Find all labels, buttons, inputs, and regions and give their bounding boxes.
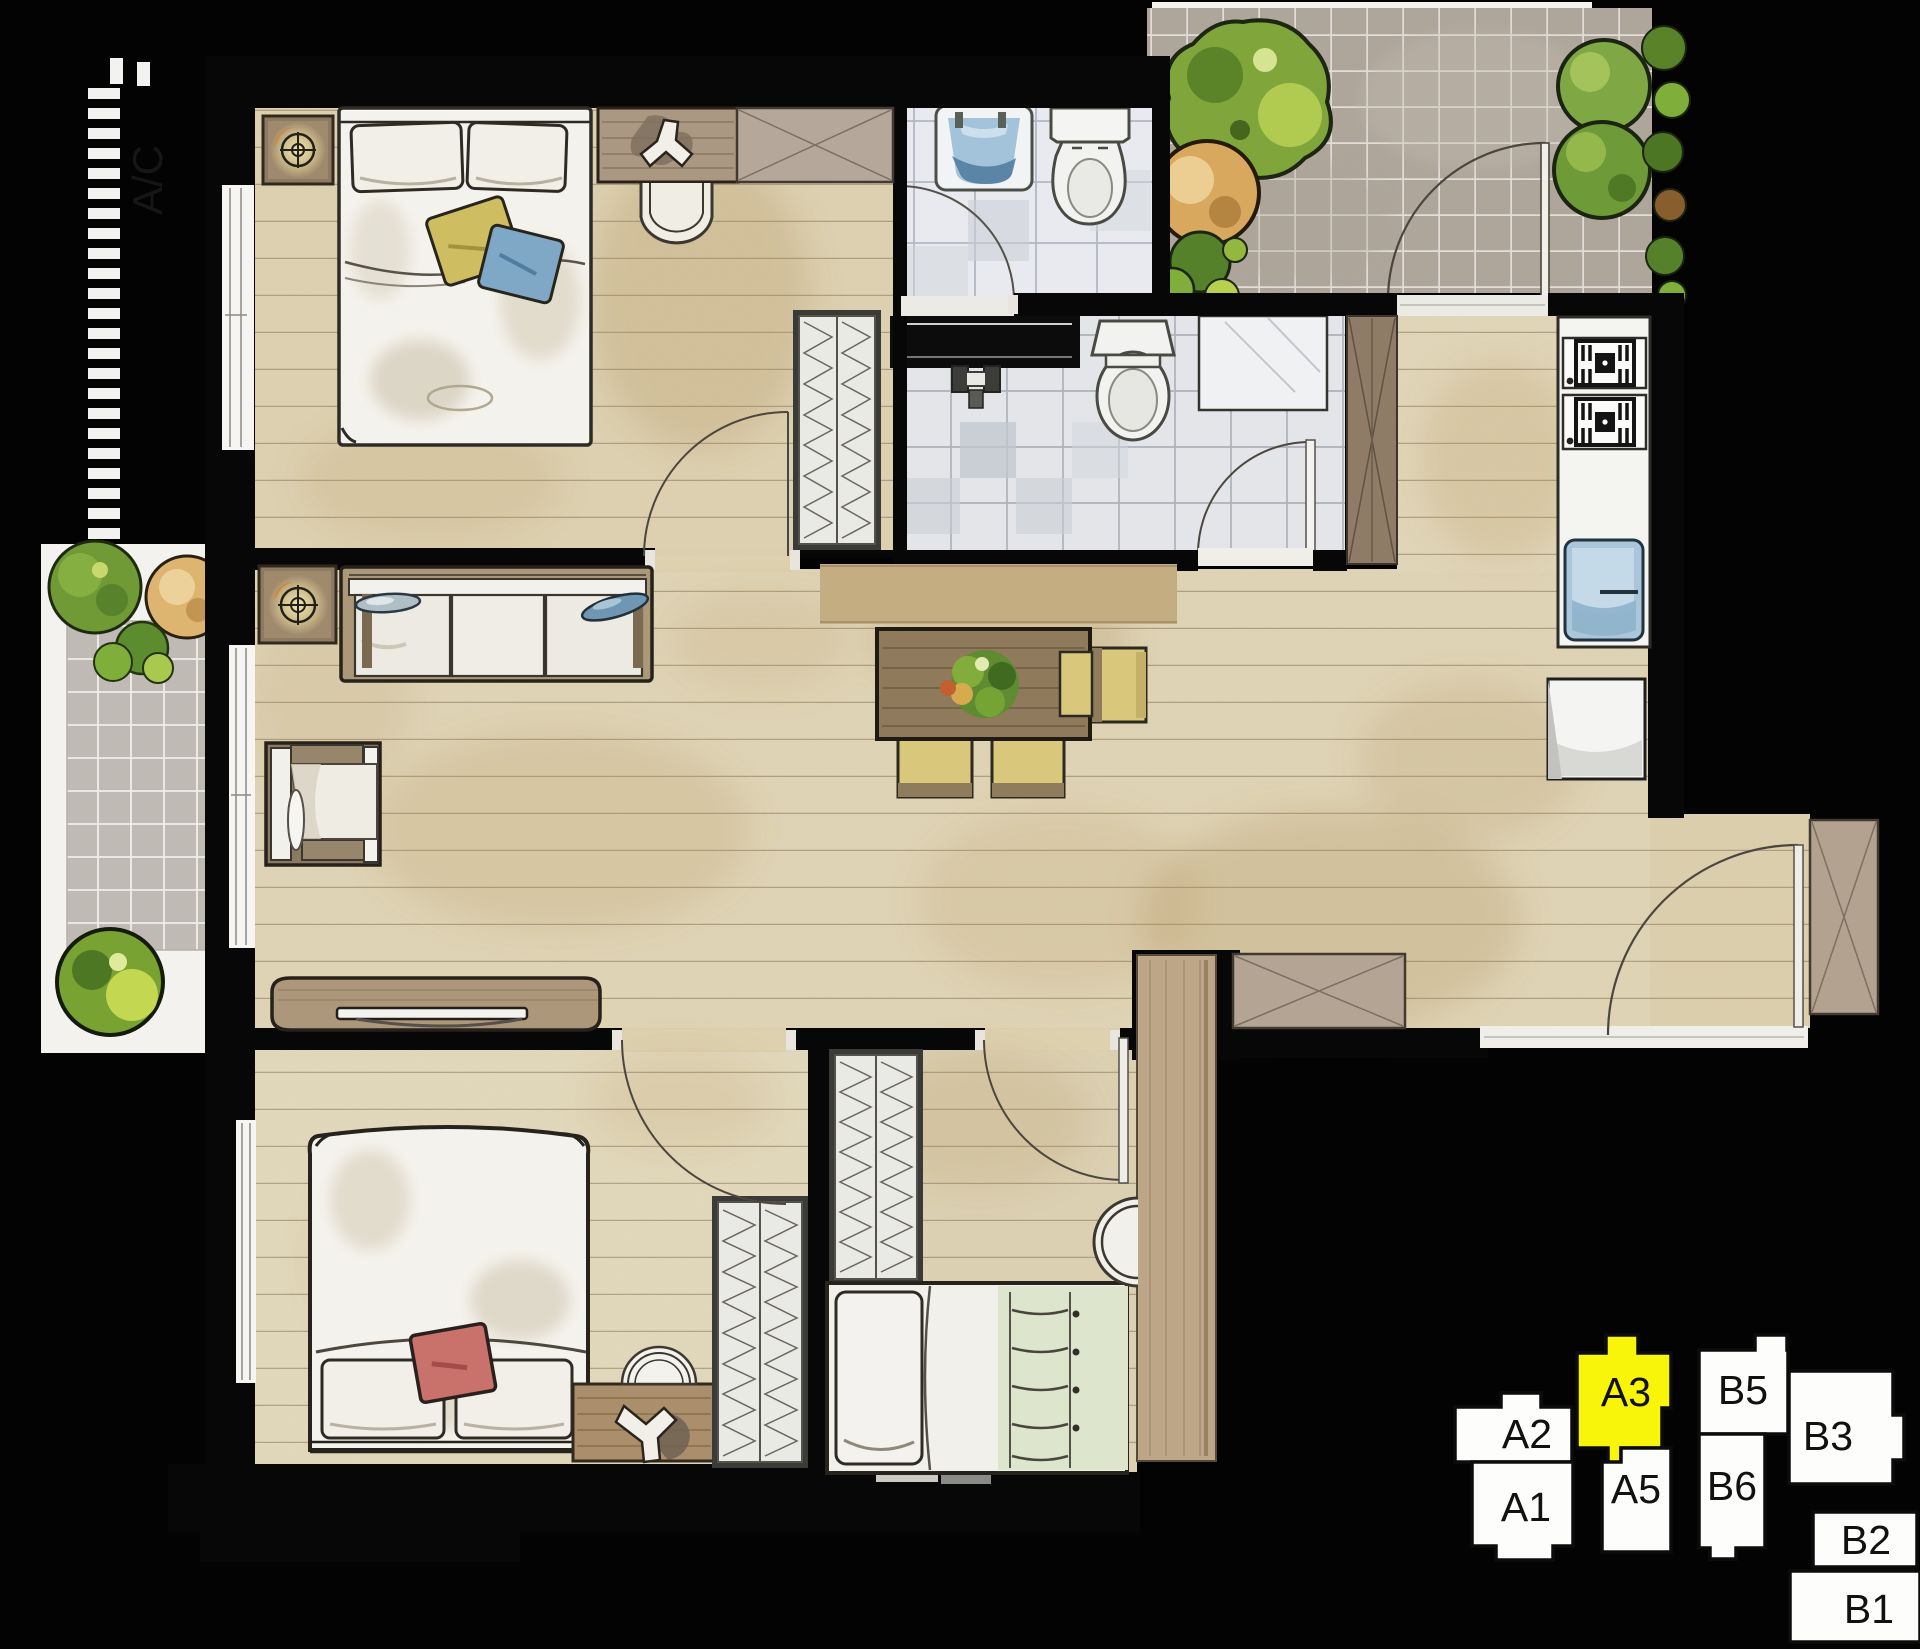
svg-text:A2: A2 [1502, 1411, 1552, 1457]
svg-text:B6: B6 [1707, 1463, 1757, 1509]
svg-text:B2: B2 [1841, 1517, 1891, 1563]
svg-text:B3: B3 [1803, 1413, 1853, 1459]
svg-text:A5: A5 [1611, 1466, 1661, 1512]
svg-text:A1: A1 [1501, 1484, 1551, 1530]
svg-text:B1: B1 [1844, 1586, 1894, 1632]
svg-text:A3: A3 [1601, 1369, 1651, 1415]
svg-text:B5: B5 [1718, 1367, 1768, 1413]
svg-text:A/C: A/C [124, 145, 171, 215]
